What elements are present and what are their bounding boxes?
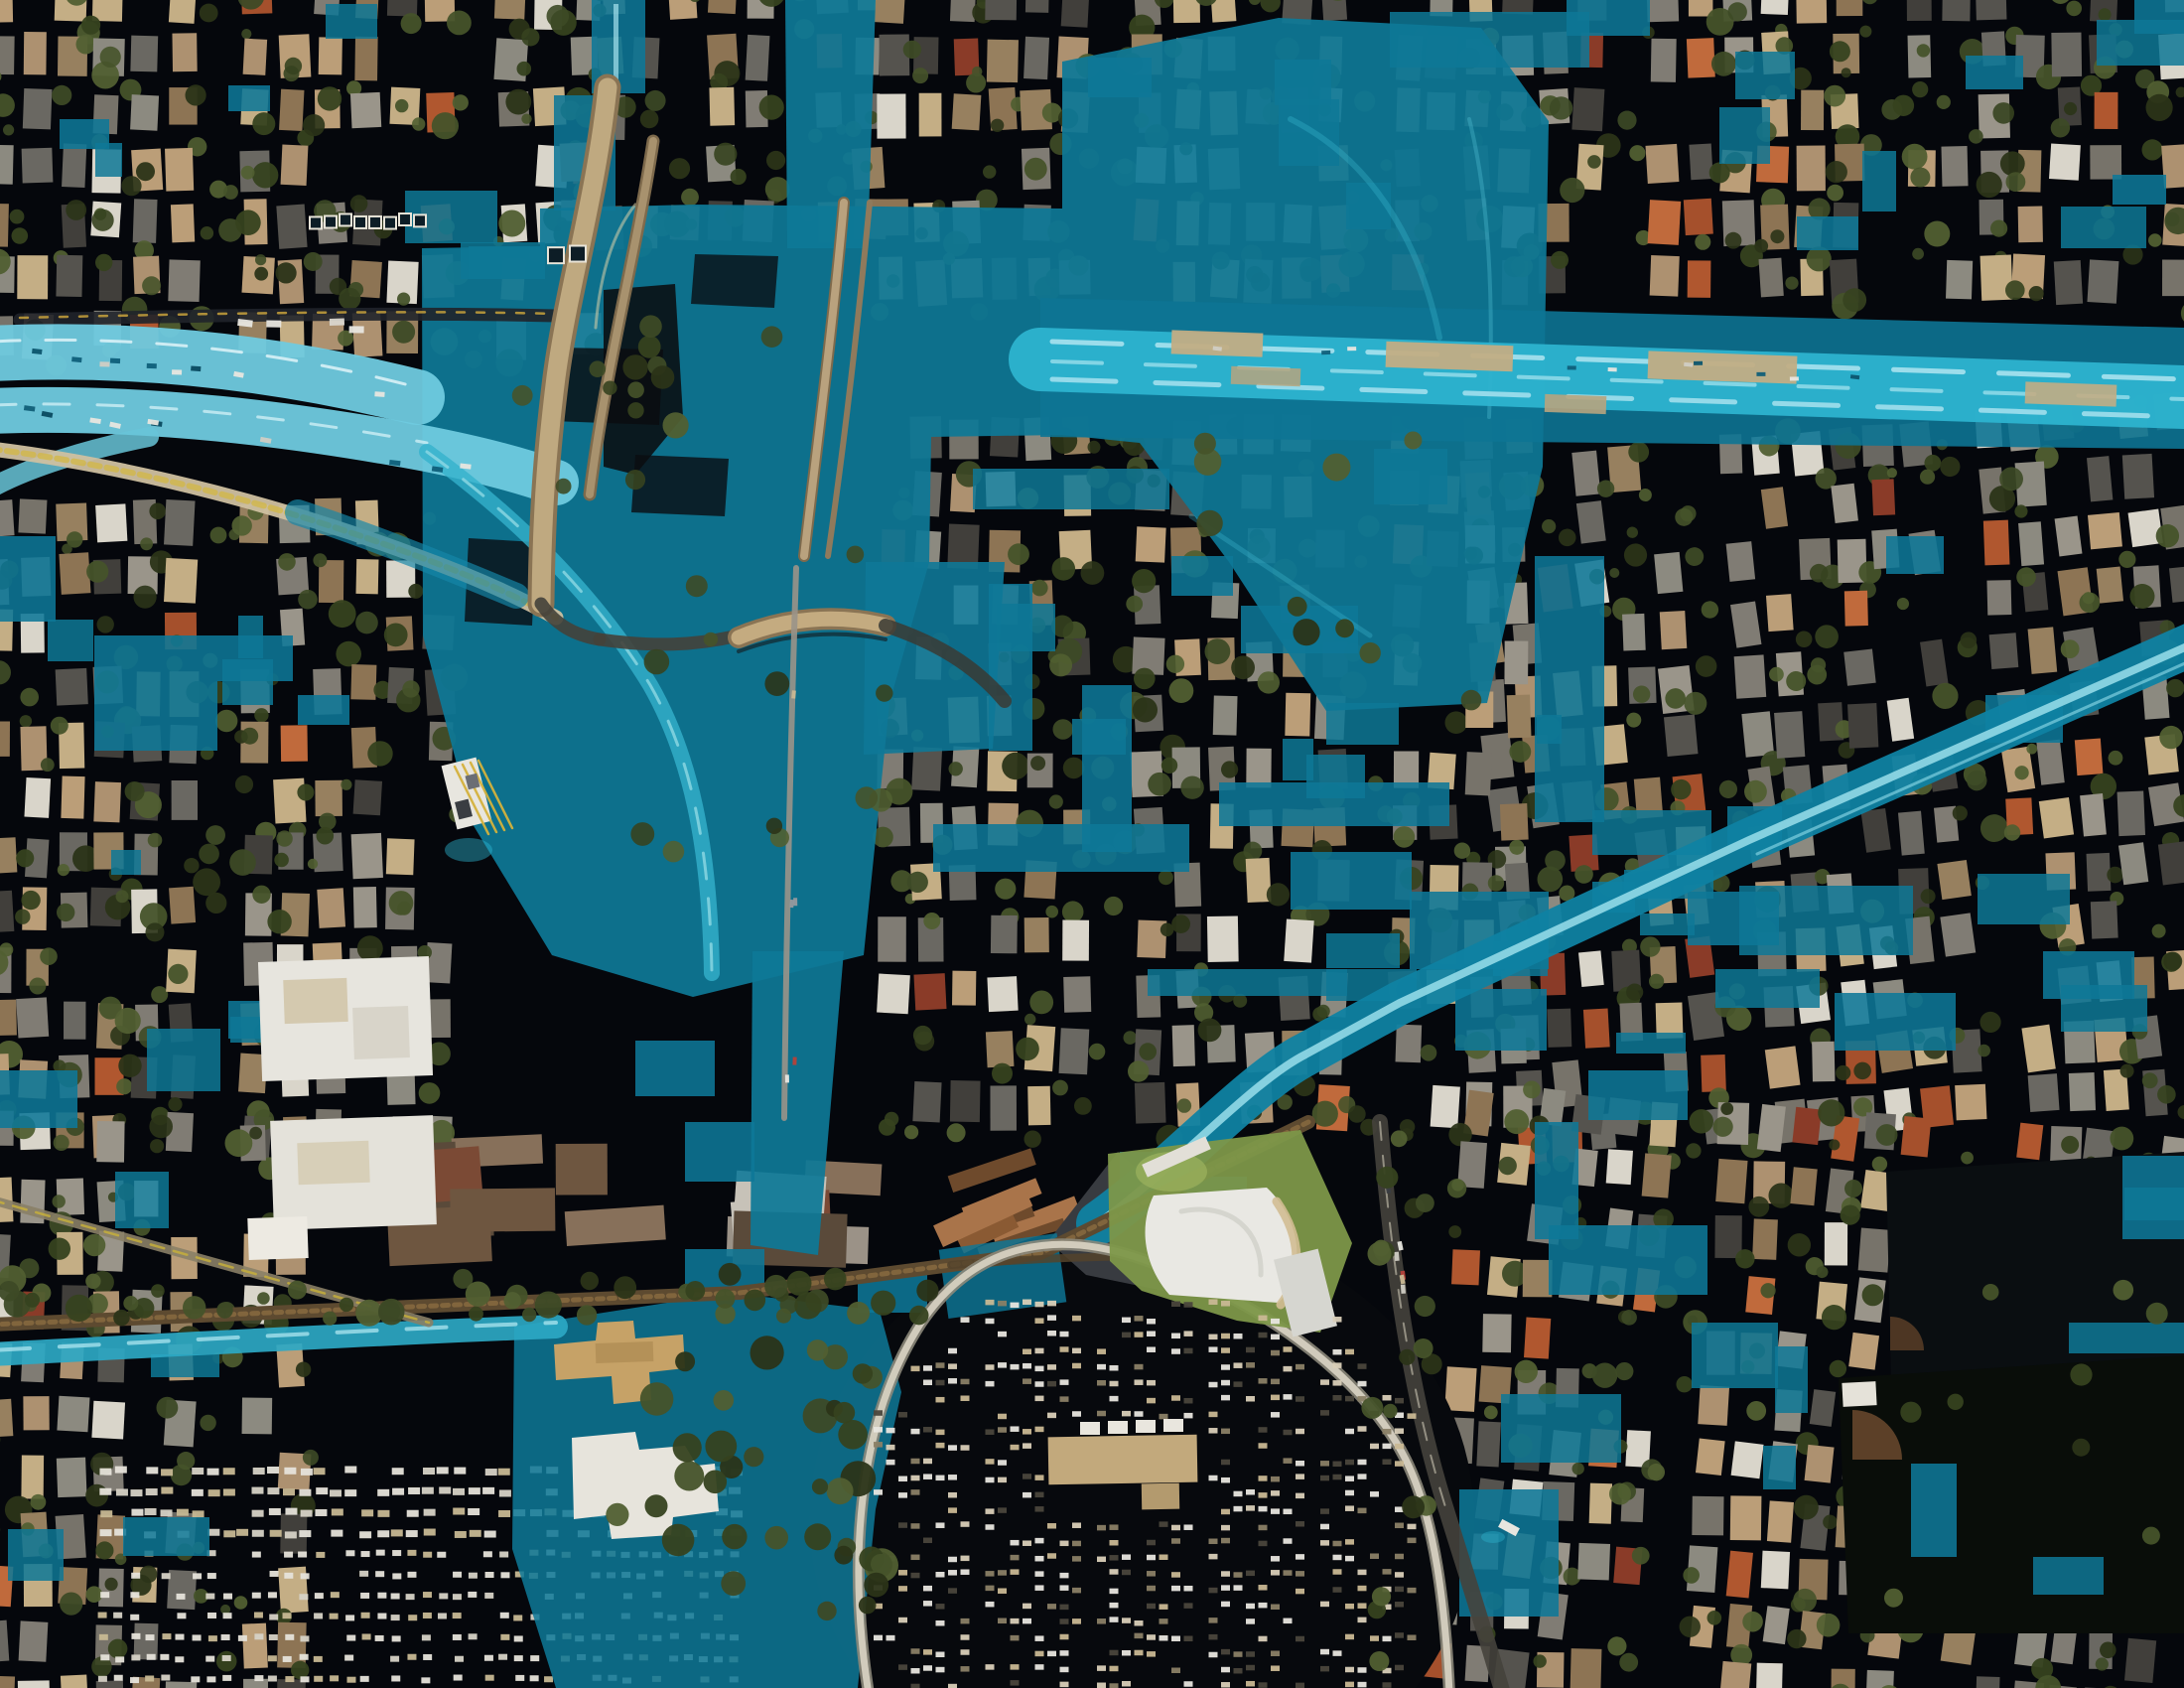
- church-ridge: [596, 1341, 654, 1363]
- band-exposed-4: [1545, 394, 1607, 414]
- band-exposed-1: [1171, 330, 1264, 356]
- warehouse-annex: [247, 1216, 308, 1260]
- unflooded-block-b: [631, 455, 729, 516]
- infield-white-2: [1108, 1421, 1128, 1434]
- infield-white-4: [1163, 1419, 1183, 1432]
- screenshot-stage: Aerial satellite photograph of a flooded…: [0, 0, 2184, 1688]
- band-exposed-3: [1648, 351, 1798, 383]
- barge-wake: [445, 838, 492, 862]
- aerial-flood-photo: Aerial satellite photograph of a flooded…: [0, 0, 2184, 1688]
- warehouse-main-detail-2: [352, 1006, 410, 1059]
- small-boat-wake: [1481, 1531, 1505, 1543]
- bayou-upper: [785, 0, 876, 248]
- infield-tan-stub: [1142, 1483, 1179, 1510]
- infield-tan-building: [1048, 1435, 1198, 1485]
- school-building: [1842, 1381, 1876, 1407]
- band-exposed-6: [1231, 366, 1301, 386]
- band-exposed-2: [1386, 342, 1514, 371]
- flood-east-of-bayou: [864, 562, 1005, 755]
- infield-white-3: [1136, 1420, 1156, 1433]
- infield-white-1: [1080, 1422, 1100, 1435]
- warehouse-south-detail: [297, 1141, 369, 1185]
- warehouse-main-detail-1: [283, 978, 347, 1024]
- band-exposed-5: [2025, 381, 2117, 406]
- unflooded-block-c: [691, 254, 778, 308]
- satellite-image: [0, 0, 2184, 1688]
